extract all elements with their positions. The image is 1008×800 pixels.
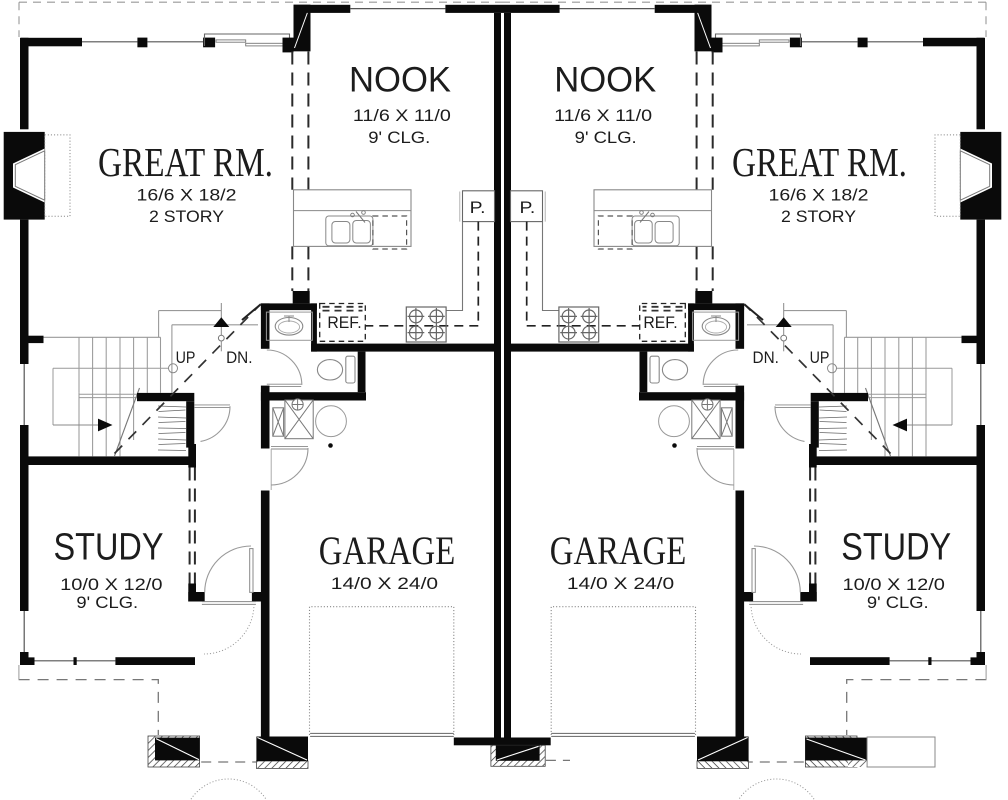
svg-text:P.: P. (520, 198, 536, 217)
svg-text:14/0 X 24/0: 14/0 X 24/0 (567, 574, 674, 593)
svg-text:16/6 X 18/2: 16/6 X 18/2 (769, 186, 869, 205)
svg-text:REF.: REF. (643, 313, 677, 332)
svg-text:9' CLG.: 9' CLG. (575, 129, 637, 147)
svg-text:2 STORY: 2 STORY (149, 208, 224, 226)
svg-text:16/6 X 18/2: 16/6 X 18/2 (137, 186, 237, 205)
svg-text:GARAGE: GARAGE (550, 528, 686, 573)
svg-text:NOOK: NOOK (349, 60, 451, 100)
svg-text:9' CLG.: 9' CLG. (867, 594, 929, 612)
svg-text:STUDY: STUDY (54, 527, 164, 569)
svg-text:UP: UP (810, 348, 830, 367)
svg-text:GREAT RM.: GREAT RM. (98, 139, 273, 185)
svg-text:11/6 X 11/0: 11/6 X 11/0 (554, 107, 652, 125)
svg-text:9' CLG.: 9' CLG. (76, 594, 138, 612)
svg-text:STUDY: STUDY (841, 527, 951, 569)
svg-text:REF.: REF. (327, 313, 361, 332)
svg-text:11/6 X 11/0: 11/6 X 11/0 (353, 107, 451, 125)
svg-text:GARAGE: GARAGE (319, 528, 455, 573)
svg-text:UP: UP (176, 348, 196, 367)
svg-text:P.: P. (470, 198, 486, 217)
svg-text:2 STORY: 2 STORY (781, 208, 856, 226)
svg-text:GREAT RM.: GREAT RM. (732, 139, 907, 185)
svg-text:NOOK: NOOK (554, 60, 656, 100)
svg-text:10/0 X 12/0: 10/0 X 12/0 (843, 575, 945, 594)
svg-text:14/0 X 24/0: 14/0 X 24/0 (331, 574, 438, 593)
svg-text:9' CLG.: 9' CLG. (368, 129, 430, 147)
svg-text:DN.: DN. (226, 348, 252, 367)
svg-text:DN.: DN. (753, 348, 779, 367)
svg-text:10/0 X 12/0: 10/0 X 12/0 (60, 575, 162, 594)
